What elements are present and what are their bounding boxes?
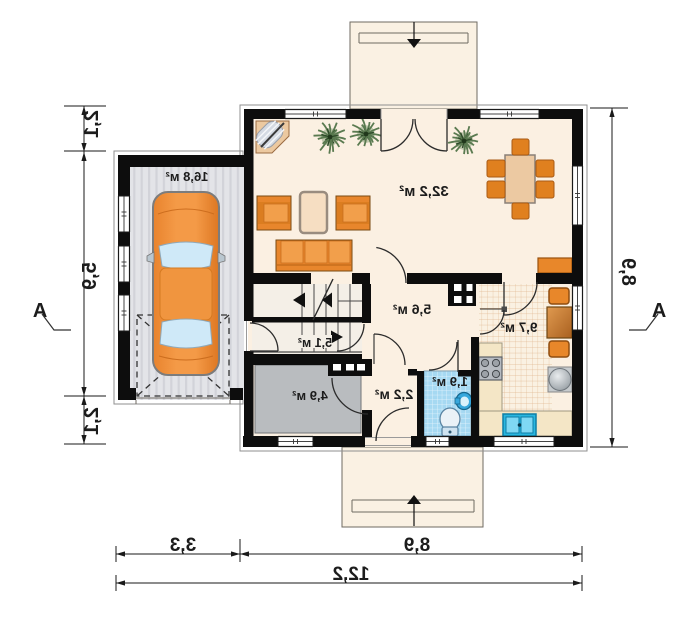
svg-text:4,9 м²: 4,9 м²	[292, 388, 328, 403]
svg-text:2,1: 2,1	[81, 407, 103, 435]
svg-text:5,1 м²: 5,1 м²	[298, 336, 332, 350]
svg-text:2,1: 2,1	[81, 110, 103, 138]
svg-text:3,3: 3,3	[170, 535, 196, 556]
svg-text:1,9 м²: 1,9 м²	[432, 374, 468, 389]
svg-text:5,9: 5,9	[79, 262, 101, 290]
svg-text:12,2: 12,2	[333, 564, 370, 585]
svg-text:5,6 м²: 5,6 м²	[392, 301, 431, 317]
svg-text:8,9: 8,9	[617, 258, 639, 286]
svg-text:8,9: 8,9	[404, 535, 430, 556]
svg-text:9,7 м²: 9,7 м²	[500, 320, 538, 335]
svg-text:32,2 м²: 32,2 м²	[399, 183, 448, 200]
svg-text:16,8 м²: 16,8 м²	[165, 169, 209, 184]
svg-text:2,2 м²: 2,2 м²	[374, 386, 413, 402]
